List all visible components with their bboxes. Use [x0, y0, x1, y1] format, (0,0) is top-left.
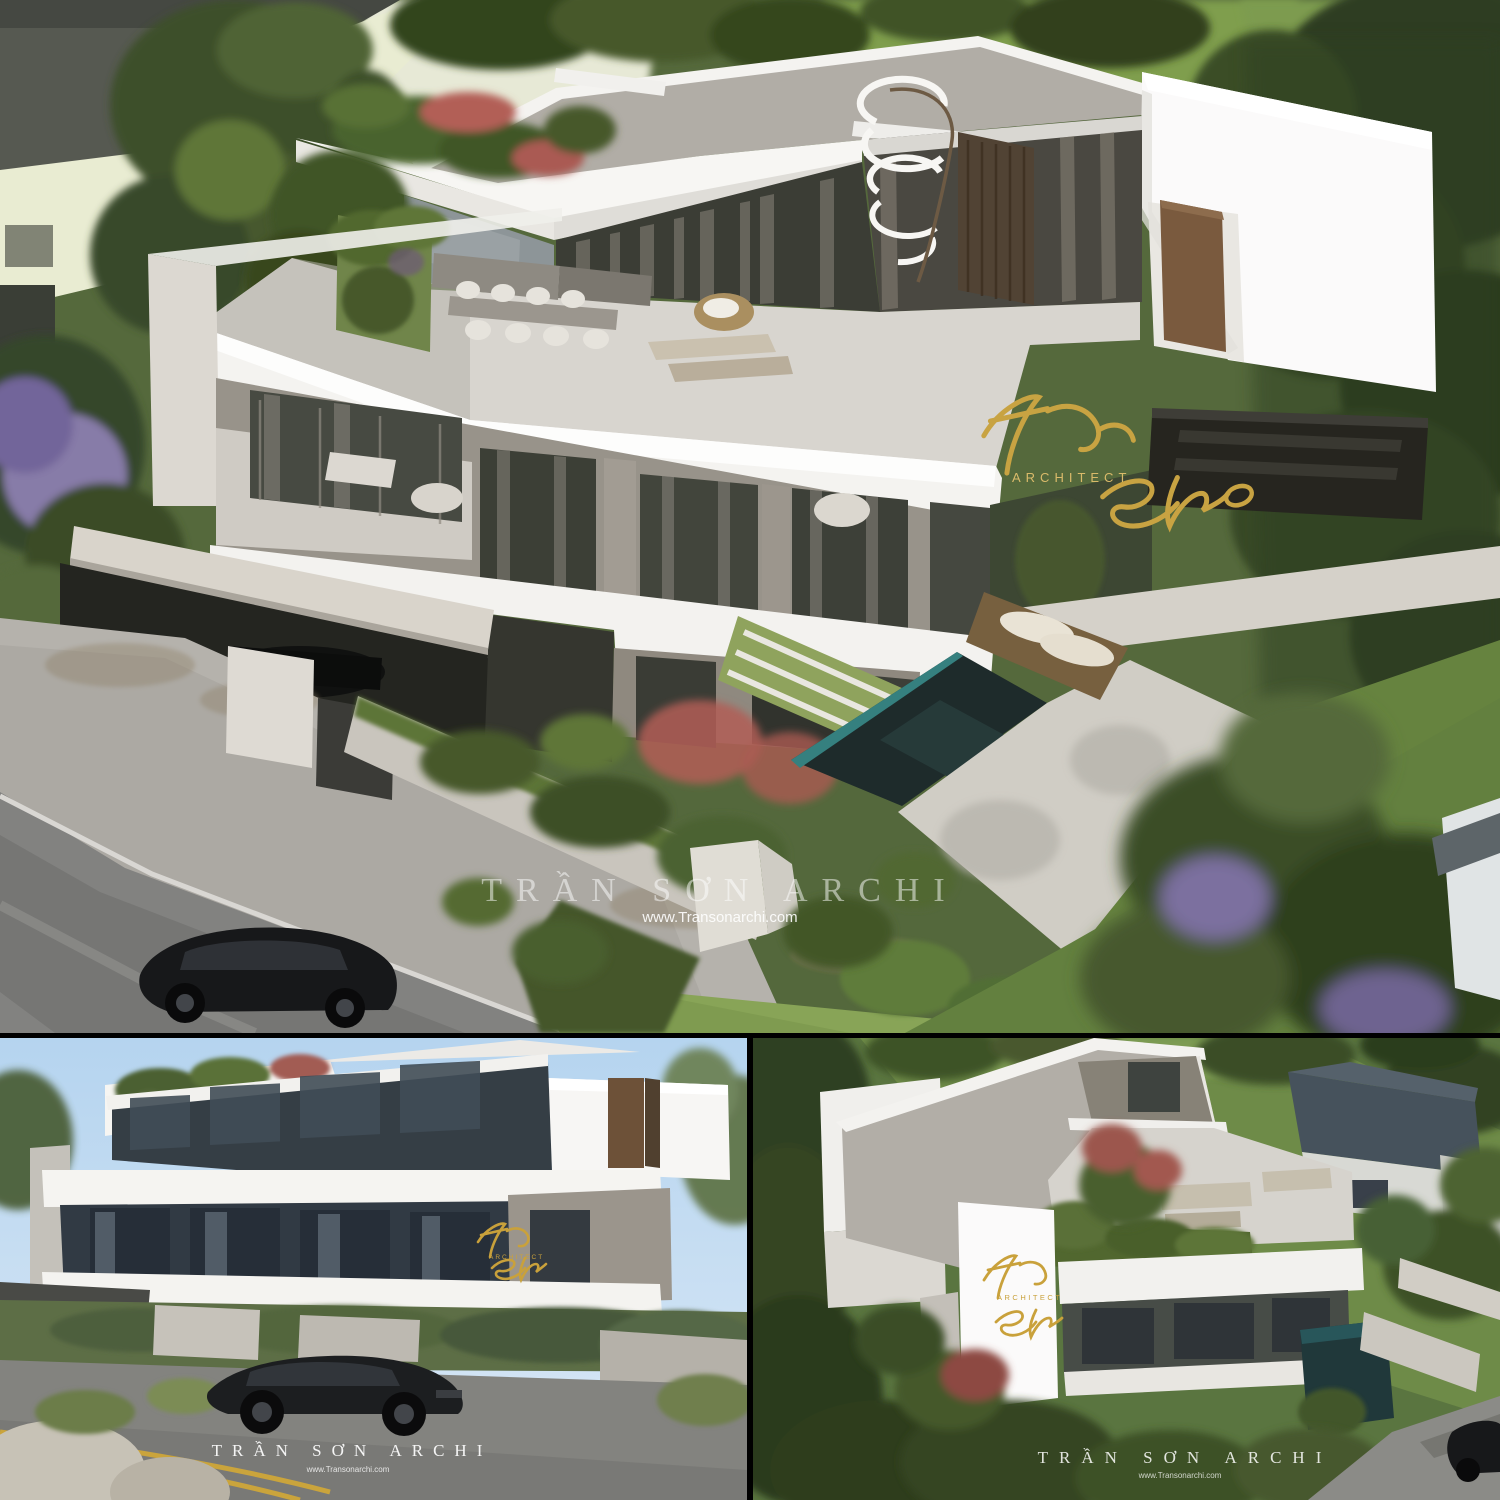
svg-text:ARCHITECT: ARCHITECT — [489, 1254, 544, 1261]
svg-text:ARCHITECT: ARCHITECT — [997, 1293, 1062, 1302]
svg-text:TRẦN SƠN ARCHI: TRẦN SƠN ARCHI — [481, 871, 958, 909]
svg-text:TRẦN SƠN ARCHI: TRẦN SƠN ARCHI — [1038, 1448, 1333, 1467]
svg-text:www.Transonarchi.com: www.Transonarchi.com — [641, 909, 797, 926]
svg-text:ARCHITECT: ARCHITECT — [1012, 470, 1131, 485]
svg-text:www.Transonarchi.com: www.Transonarchi.com — [1138, 1471, 1222, 1480]
svg-text:TRẦN SƠN ARCHI: TRẦN SƠN ARCHI — [212, 1441, 493, 1460]
svg-text:www.Transonarchi.com: www.Transonarchi.com — [306, 1465, 390, 1474]
